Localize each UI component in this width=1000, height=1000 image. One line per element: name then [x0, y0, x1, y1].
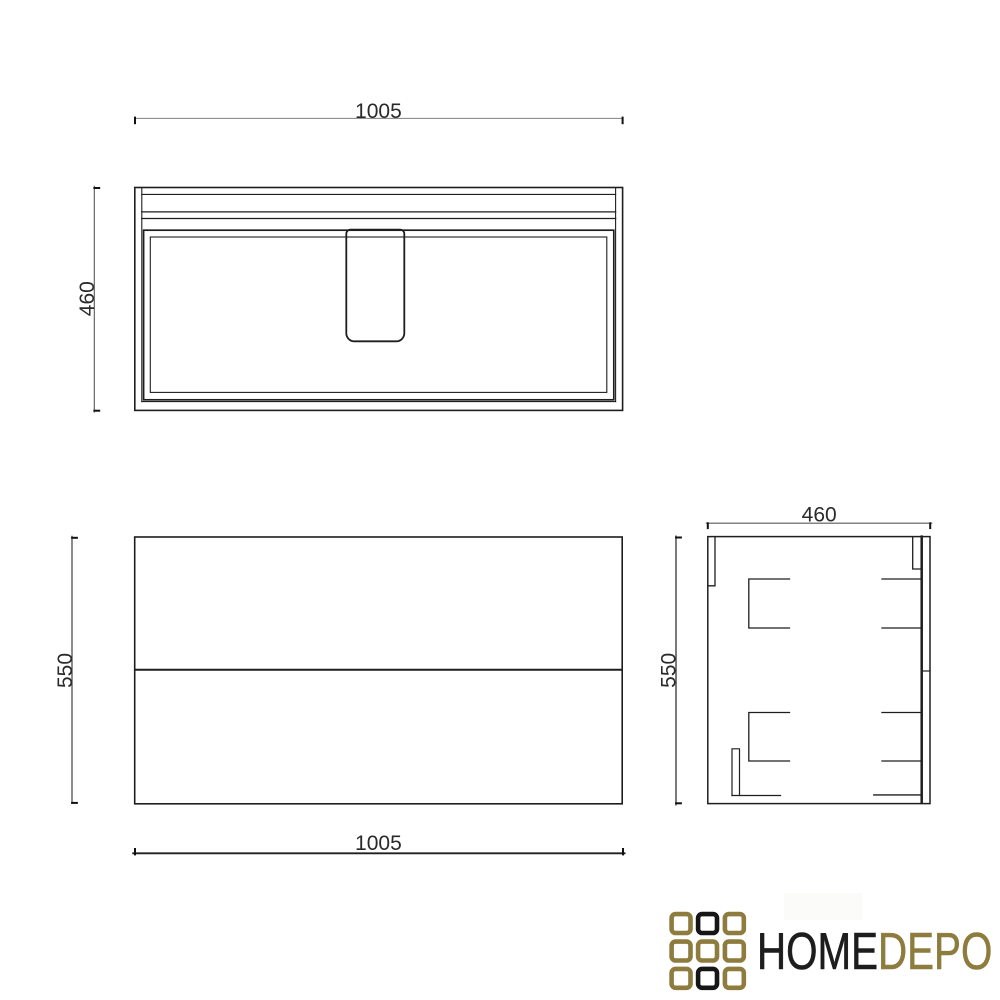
svg-text:460: 460: [76, 281, 99, 316]
svg-text:1005: 1005: [355, 832, 402, 855]
svg-text:550: 550: [657, 653, 680, 688]
svg-text:HOMEDEPO: HOMEDEPO: [757, 922, 992, 980]
svg-text:460: 460: [802, 504, 837, 527]
svg-text:1005: 1005: [355, 100, 402, 123]
svg-text:550: 550: [54, 653, 77, 688]
